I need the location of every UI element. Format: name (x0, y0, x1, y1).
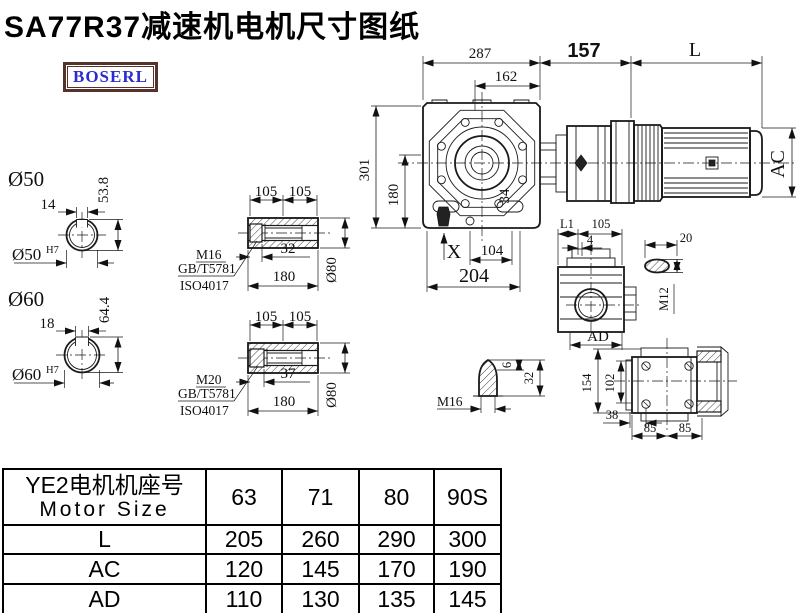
dim-L: L (689, 39, 701, 61)
oil-plug (437, 207, 450, 226)
gearbox-side-view: L1 105 4 AD (558, 217, 642, 350)
dim-34: 34 (497, 188, 513, 204)
table-header-motor-size: YE2电机机座号 Motor Size (3, 469, 206, 525)
label-std1-1: GB/T5781 (178, 261, 236, 276)
dim-32: 32 (281, 241, 296, 257)
table-header-cn: YE2电机机座号 (4, 472, 205, 498)
dim-37: 37 (281, 366, 297, 382)
dim-key-18: 18 (40, 316, 55, 332)
table-row-AD: AD 110 130 135 145 (3, 584, 501, 613)
dim-32-cone: 32 (522, 372, 536, 385)
label-thread-m16: M16 (196, 247, 222, 262)
cell-AC-90S: 190 (434, 554, 501, 584)
cell-AD-90S: 145 (434, 584, 501, 613)
label-std2-2: ISO4017 (180, 403, 229, 418)
cell-AD-80: 135 (359, 584, 434, 613)
motor-adapter (540, 121, 634, 203)
label-d50: Ø50 (8, 167, 44, 191)
label-bore-60-tol: H7 (46, 365, 59, 376)
dim-AD: AD (587, 329, 609, 345)
rear-flange-view: 154 102 38 85 85 (580, 338, 737, 440)
dim-105b-1: 105 (289, 184, 312, 200)
dim-105b-2: 105 (289, 309, 312, 325)
dim-180-2: 180 (273, 394, 296, 410)
dim-dia-80-1: Ø80 (324, 257, 340, 283)
label-thread-m16-cone: M16 (437, 394, 463, 409)
dim-180-1: 180 (273, 269, 296, 285)
hollow-shaft-section-1: 105 105 32 180 Ø80 M16 GB/T5781 ISO4017 (178, 184, 350, 293)
dim-102: 102 (603, 374, 617, 393)
table-col-90S: 90S (434, 469, 501, 525)
dim-AC: AC (767, 150, 789, 178)
dim-157: 157 (567, 40, 600, 62)
label-bore-60: Ø60 (12, 365, 41, 384)
dim-53-8: 53.8 (96, 177, 112, 203)
dim-dia-80-2: Ø80 (324, 382, 340, 408)
cell-AC-63: 120 (206, 554, 282, 584)
dim-287: 287 (469, 46, 492, 62)
dim-L1: L1 (560, 217, 574, 231)
drawing-sheet: SA77R37减速机电机尺寸图纸 BOSERL (0, 0, 800, 613)
cell-L-80: 290 (359, 525, 434, 554)
dim-204: 204 (459, 265, 489, 287)
cell-L-71: 260 (282, 525, 359, 554)
row-label-AD: AD (3, 584, 206, 613)
dim-38: 38 (606, 408, 619, 422)
dim-85b: 85 (679, 421, 692, 435)
row-label-AC: AC (3, 554, 206, 584)
dim-85a: 85 (644, 421, 657, 435)
dim-104: 104 (481, 243, 504, 259)
dim-105a-2: 105 (255, 309, 278, 325)
label-d60: Ø60 (8, 287, 44, 311)
cell-L-63: 205 (206, 525, 282, 554)
cone-detail-m16: M16 6 32 (437, 360, 545, 413)
cell-AD-71: 130 (282, 584, 359, 613)
cell-AC-80: 170 (359, 554, 434, 584)
table-row-AC: AC 120 145 170 190 (3, 554, 501, 584)
label-std2-1: ISO4017 (180, 278, 229, 293)
table-col-80: 80 (359, 469, 434, 525)
dim-180: 180 (386, 184, 402, 207)
label-bore-50: Ø50 (12, 245, 41, 264)
label-thread-m12: M12 (657, 287, 671, 311)
cell-AC-71: 145 (282, 554, 359, 584)
dim-64-4: 64.4 (97, 296, 113, 323)
dim-154: 154 (580, 373, 594, 393)
cell-L-90S: 300 (434, 525, 501, 554)
label-bore-50-tol: H7 (46, 245, 59, 256)
dim-105a-1: 105 (255, 184, 278, 200)
dim-X: X (447, 241, 462, 263)
cell-AD-63: 110 (206, 584, 282, 613)
table-row-L: L 205 260 290 300 (3, 525, 501, 554)
dim-4: 4 (587, 233, 594, 247)
dim-105-side: 105 (592, 217, 611, 231)
dim-key-14: 14 (41, 197, 57, 213)
label-thread-m20: M20 (196, 372, 222, 387)
dim-301: 301 (357, 159, 373, 182)
label-std1-2: GB/T5781 (178, 386, 236, 401)
technical-drawing: 34 (0, 0, 800, 466)
table-col-63: 63 (206, 469, 282, 525)
dim-20: 20 (680, 231, 693, 245)
table-col-71: 71 (282, 469, 359, 525)
vent-symbol (575, 155, 587, 171)
hollow-shaft-section-2: 105 105 37 180 Ø80 M20 GB/T5781 ISO4017 (178, 309, 350, 418)
row-label-L: L (3, 525, 206, 554)
shaft-detail-60: Ø60 18 64.4 Ø60 H7 (8, 287, 123, 388)
table-header-en: Motor Size (4, 498, 205, 522)
dim-6: 6 (500, 362, 514, 368)
shaft-detail-50: Ø50 14 53.8 Ø50 H7 (8, 167, 123, 268)
plug-detail-m12: 20 M12 (645, 231, 692, 314)
dim-162: 162 (495, 69, 518, 85)
motor-size-table: YE2电机机座号 Motor Size 63 71 80 90S L 205 2… (2, 468, 502, 613)
